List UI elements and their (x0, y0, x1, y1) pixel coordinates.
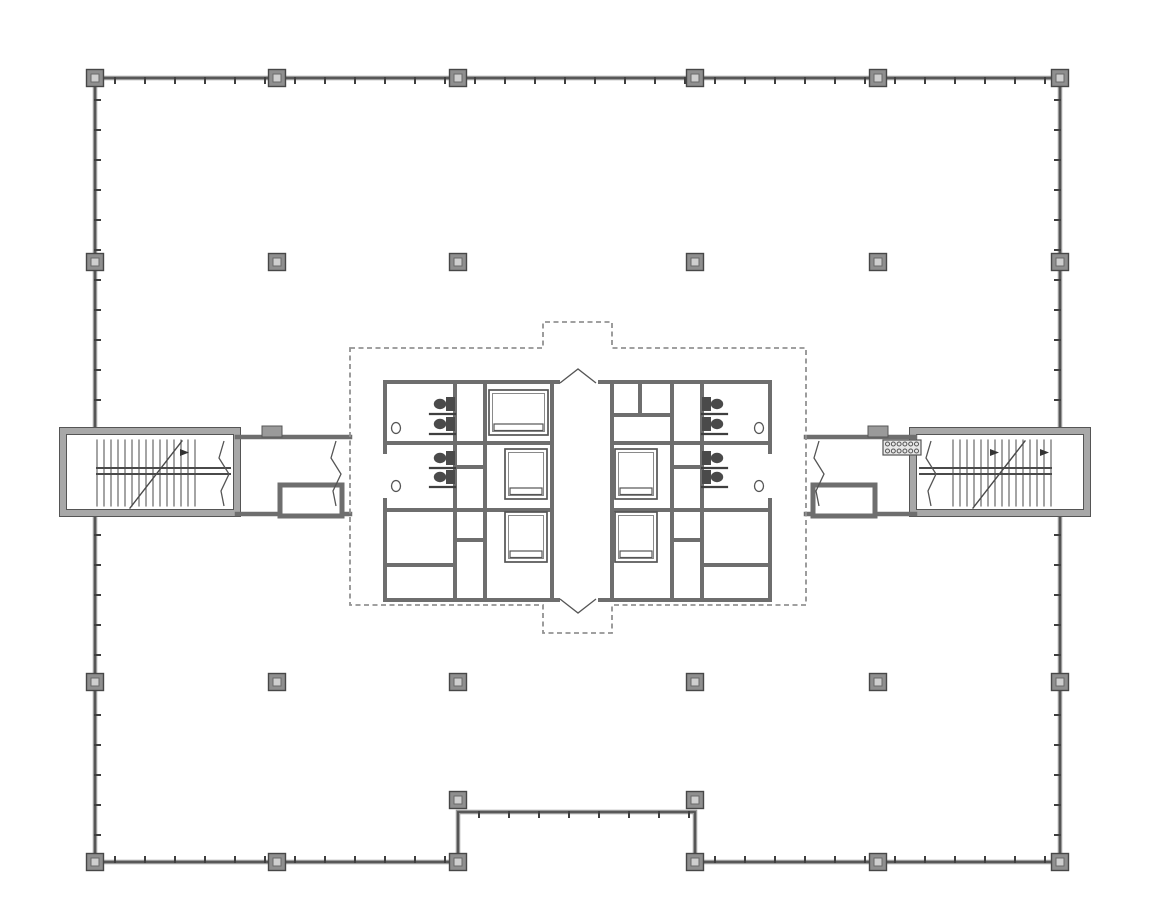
structural-column (687, 70, 704, 87)
structural-column (450, 854, 467, 871)
structural-column (1052, 674, 1069, 691)
elevator-shaft (615, 512, 657, 562)
column-inner (454, 678, 462, 686)
column-inner (273, 858, 281, 866)
sink-fixture (392, 481, 401, 492)
column-inner (691, 858, 699, 866)
structural-column (269, 854, 286, 871)
structural-column (87, 254, 104, 271)
structural-column (269, 70, 286, 87)
floor-plan-drawing (0, 0, 1150, 916)
column-inner (691, 678, 699, 686)
stair-left (60, 428, 241, 517)
structural-column (269, 674, 286, 691)
column-inner (874, 678, 882, 686)
structural-column (687, 254, 704, 271)
structural-column (1052, 254, 1069, 271)
structural-column (450, 254, 467, 271)
structural-column (870, 70, 887, 87)
column-inner (874, 858, 882, 866)
column-inner (1056, 74, 1064, 82)
structural-column (687, 854, 704, 871)
toilet-tank (702, 397, 711, 411)
sink-fixture (755, 481, 764, 492)
elevator-shaft (505, 449, 547, 499)
column-inner (91, 258, 99, 266)
toilet-bowl (711, 453, 723, 463)
column-inner (874, 258, 882, 266)
column-inner (1056, 858, 1064, 866)
corridor-pilaster (868, 426, 888, 437)
toilet-tank (446, 397, 455, 411)
structural-column (1052, 70, 1069, 87)
stair-enclosure-wall (913, 431, 1087, 513)
structural-column (870, 674, 887, 691)
toilet-bowl (434, 419, 446, 429)
floor-plan-canvas (0, 0, 1150, 916)
structural-column (87, 70, 104, 87)
toilet-tank (702, 417, 711, 431)
toilet-tank (446, 451, 455, 465)
elevator-shaft (615, 449, 657, 499)
toilet-tank (446, 470, 455, 484)
column-inner (691, 258, 699, 266)
column-inner (454, 74, 462, 82)
elevator-shaft (505, 512, 547, 562)
elevator-car (489, 390, 548, 435)
toilet-bowl (711, 472, 723, 482)
column-inner (273, 74, 281, 82)
toilet-bowl (711, 419, 723, 429)
toilet-tank (702, 470, 711, 484)
column-inner (691, 796, 699, 804)
corridor-pilaster (262, 426, 282, 437)
elevator-car (615, 449, 657, 499)
toilet-bowl (434, 472, 446, 482)
column-inner (874, 74, 882, 82)
column-inner (273, 678, 281, 686)
stair-right (910, 428, 1091, 517)
column-inner (273, 258, 281, 266)
column-inner (1056, 678, 1064, 686)
stair-enclosure-wall (63, 431, 237, 513)
column-inner (91, 678, 99, 686)
vent-grille (883, 440, 921, 455)
column-inner (691, 74, 699, 82)
column-inner (1056, 258, 1064, 266)
structural-column (1052, 854, 1069, 871)
structural-column (687, 674, 704, 691)
sink-fixture (755, 423, 764, 434)
structural-column (450, 70, 467, 87)
structural-column (87, 674, 104, 691)
structural-column (450, 674, 467, 691)
structural-column (87, 854, 104, 871)
structural-column (870, 254, 887, 271)
structural-column (870, 854, 887, 871)
toilet-tank (446, 417, 455, 431)
toilet-bowl (434, 399, 446, 409)
structural-column (687, 792, 704, 809)
elevator-shaft (489, 390, 548, 435)
toilet-tank (702, 451, 711, 465)
sink-fixture (392, 423, 401, 434)
toilet-bowl (711, 399, 723, 409)
corridor-vestibule (813, 485, 875, 516)
elevator-car (505, 449, 547, 499)
column-inner (91, 858, 99, 866)
structural-column (269, 254, 286, 271)
floor-plan-page (0, 0, 1150, 916)
corridor-vestibule (280, 485, 342, 516)
column-inner (454, 258, 462, 266)
elevator-car (505, 512, 547, 562)
column-inner (454, 796, 462, 804)
structural-column (450, 792, 467, 809)
toilet-bowl (434, 453, 446, 463)
column-inner (91, 74, 99, 82)
elevator-car (615, 512, 657, 562)
column-inner (454, 858, 462, 866)
